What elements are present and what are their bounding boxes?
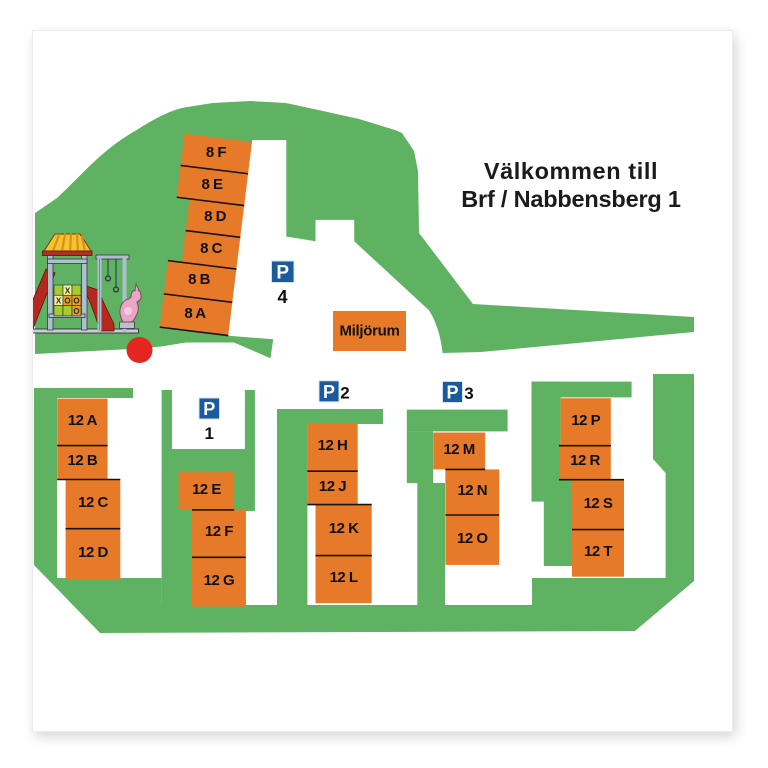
svg-text:12 T: 12 T [584,543,612,560]
svg-text:12 S: 12 S [584,495,613,512]
svg-text:12 K: 12 K [329,520,359,537]
svg-text:1: 1 [204,424,213,443]
svg-text:8 B: 8 B [188,271,211,288]
svg-text:O: O [73,297,79,306]
svg-text:P: P [323,382,335,402]
svg-text:12 P: 12 P [571,412,600,429]
svg-text:P: P [446,383,458,403]
svg-text:2: 2 [340,384,349,403]
svg-text:Välkommen till: Välkommen till [484,158,658,184]
svg-text:O: O [73,307,79,316]
svg-text:12 A: 12 A [68,412,98,429]
svg-text:12 F: 12 F [205,523,233,540]
svg-text:12 O: 12 O [457,530,488,547]
svg-text:8 C: 8 C [200,240,223,257]
svg-text:P: P [203,399,215,419]
svg-text:4: 4 [277,287,287,307]
svg-text:8 E: 8 E [201,176,223,193]
svg-text:8 D: 8 D [204,208,227,225]
svg-text:3: 3 [464,384,473,403]
svg-text:12 G: 12 G [204,572,235,589]
svg-text:12 J: 12 J [319,478,346,495]
svg-text:X: X [65,287,71,296]
svg-text:12 C: 12 C [78,494,108,511]
svg-text:P: P [276,263,289,284]
svg-text:8 A: 8 A [184,305,206,322]
svg-text:12 M: 12 M [443,441,474,458]
svg-text:Brf / Nabbensberg 1: Brf / Nabbensberg 1 [461,186,681,212]
svg-text:12 H: 12 H [318,437,348,454]
svg-text:O: O [64,297,70,306]
svg-text:12 D: 12 D [78,544,108,561]
svg-text:8 F: 8 F [206,144,227,161]
svg-text:X: X [56,297,62,306]
svg-text:Miljörum: Miljörum [339,323,399,340]
svg-text:12 N: 12 N [457,482,487,499]
svg-text:12 R: 12 R [570,452,600,469]
svg-text:12 B: 12 B [68,452,98,469]
svg-text:12 E: 12 E [192,481,221,498]
svg-text:12 L: 12 L [330,569,358,586]
